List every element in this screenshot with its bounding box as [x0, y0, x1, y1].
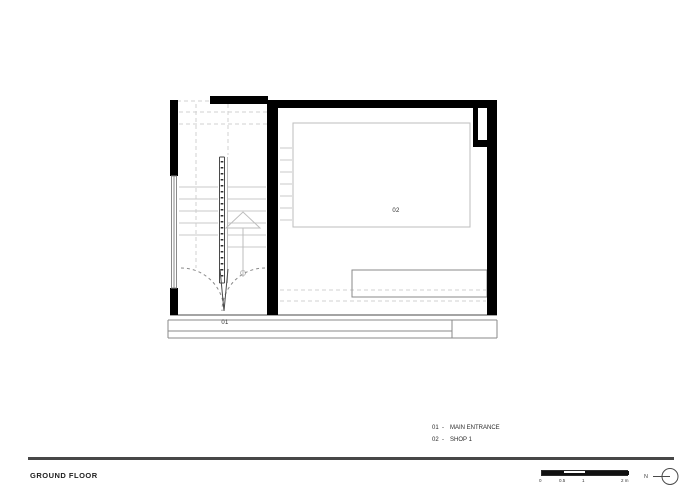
scale-segment [542, 471, 564, 475]
top-wall-left [210, 96, 268, 104]
drawing-sheet: 01 02 01 - MAIN ENTRANCE 02 - SHOP 1 GRO… [0, 0, 700, 495]
legend-code: 01 [432, 423, 442, 435]
scale-segment [585, 471, 629, 475]
legend-code: 02 [432, 435, 442, 447]
left-wall-lower [170, 288, 178, 315]
floor-plan-drawing [0, 0, 700, 495]
top-wall-right [267, 100, 497, 108]
counter [352, 270, 487, 297]
scale-tick: 1 [582, 478, 585, 483]
legend: 01 - MAIN ENTRANCE 02 - SHOP 1 [432, 423, 500, 446]
legend-separator: - [442, 435, 450, 447]
interior-wall [267, 100, 278, 315]
room-label-02: 02 [385, 208, 407, 214]
left-wall-window [172, 176, 177, 288]
footer-rule [28, 457, 674, 460]
wall-shelf-rungs [280, 148, 292, 220]
legend-name: SHOP 1 [450, 435, 472, 447]
north-arrow-symbol [653, 469, 678, 485]
legend-name: MAIN ENTRANCE [450, 423, 500, 435]
north-label: N [644, 474, 648, 480]
legend-item-02: 02 - SHOP 1 [432, 435, 500, 447]
door-swing-arc-left [181, 268, 224, 311]
scale-tick: 2 m [621, 478, 629, 483]
legend-separator: - [442, 423, 450, 435]
legend-item-01: 01 - MAIN ENTRANCE [432, 423, 500, 435]
scale-segment [564, 471, 585, 475]
room-label-01: 01 [214, 320, 236, 326]
entrance-doors [181, 268, 265, 311]
stair-steps [179, 187, 266, 247]
ceiling-outline [293, 123, 470, 227]
stair-railing [220, 157, 228, 283]
overhead-dashed-lines [170, 101, 486, 301]
right-wall [487, 100, 497, 315]
shop-fixtures [280, 123, 487, 297]
scale-tick: 0 [539, 478, 542, 483]
stair-direction-arrow [226, 212, 260, 277]
left-wall-upper [170, 100, 178, 176]
scale-bar [541, 470, 628, 476]
scale-tick: 0.5 [559, 478, 565, 483]
stair [179, 157, 266, 283]
corner-niche-cap [473, 140, 487, 147]
sheet-title: GROUND FLOOR [30, 471, 98, 480]
